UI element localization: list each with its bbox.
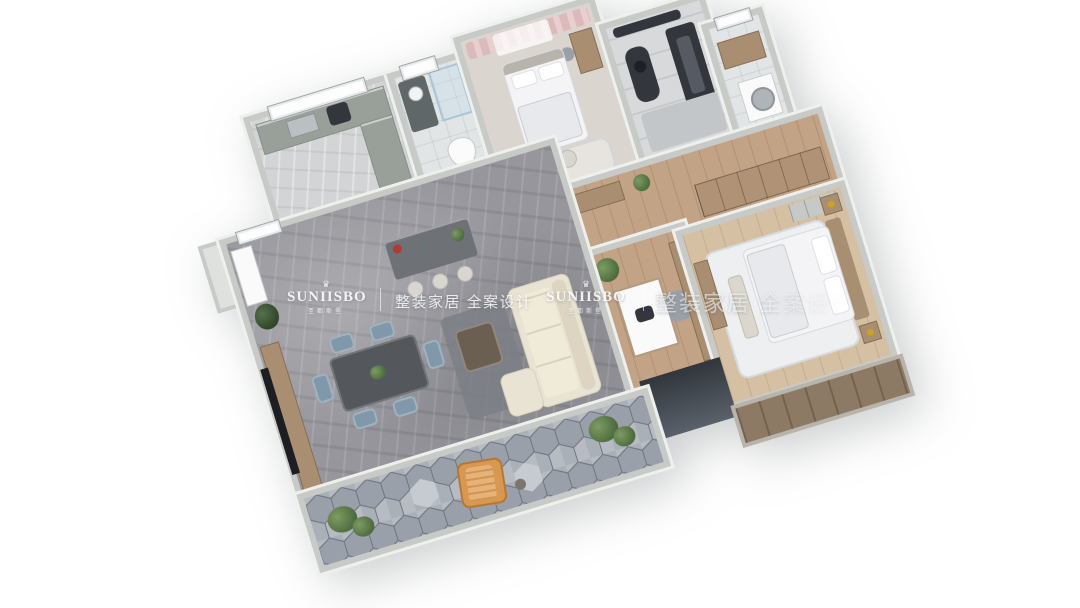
lounge-chair-cushion [464,464,497,502]
treadmill-belt [676,35,706,95]
dining-chair-5 [311,372,335,404]
nightstand-lamp-1 [827,200,836,209]
laundry-counter [717,30,767,70]
entry-door [235,219,283,246]
nightstand-lamp-2 [866,328,875,337]
gym-mat [640,91,728,153]
bar-stool-1 [405,279,425,299]
floorplan-stage: ♛ SUNIISBO 圣都斯堡 整装家居 全案设计 ♛ SUNIISBO 圣都斯… [0,0,1080,608]
bar-stool-3 [455,264,475,284]
hall-plant [631,172,652,193]
washing-machine [737,72,784,123]
apartment-plan [14,0,1066,608]
laundry-window [713,7,753,31]
toilet [445,134,481,171]
nightstand-2 [859,320,883,344]
exercise-bike [623,44,662,105]
dining-chair-4 [391,395,419,418]
table-centerpiece [368,363,387,381]
dining-chair-3 [351,407,379,430]
corner-plant [252,301,283,333]
washer-door [748,84,778,114]
study-plant [592,255,622,285]
lounge-chair [456,457,509,510]
kitchen-side-counter [360,114,414,195]
dining-chair-6 [422,339,446,371]
red-kettle [392,243,403,254]
bedroom2-blanket [517,91,584,151]
bar-stool-2 [430,271,450,291]
laptop [634,305,655,324]
island-plant [450,227,466,243]
